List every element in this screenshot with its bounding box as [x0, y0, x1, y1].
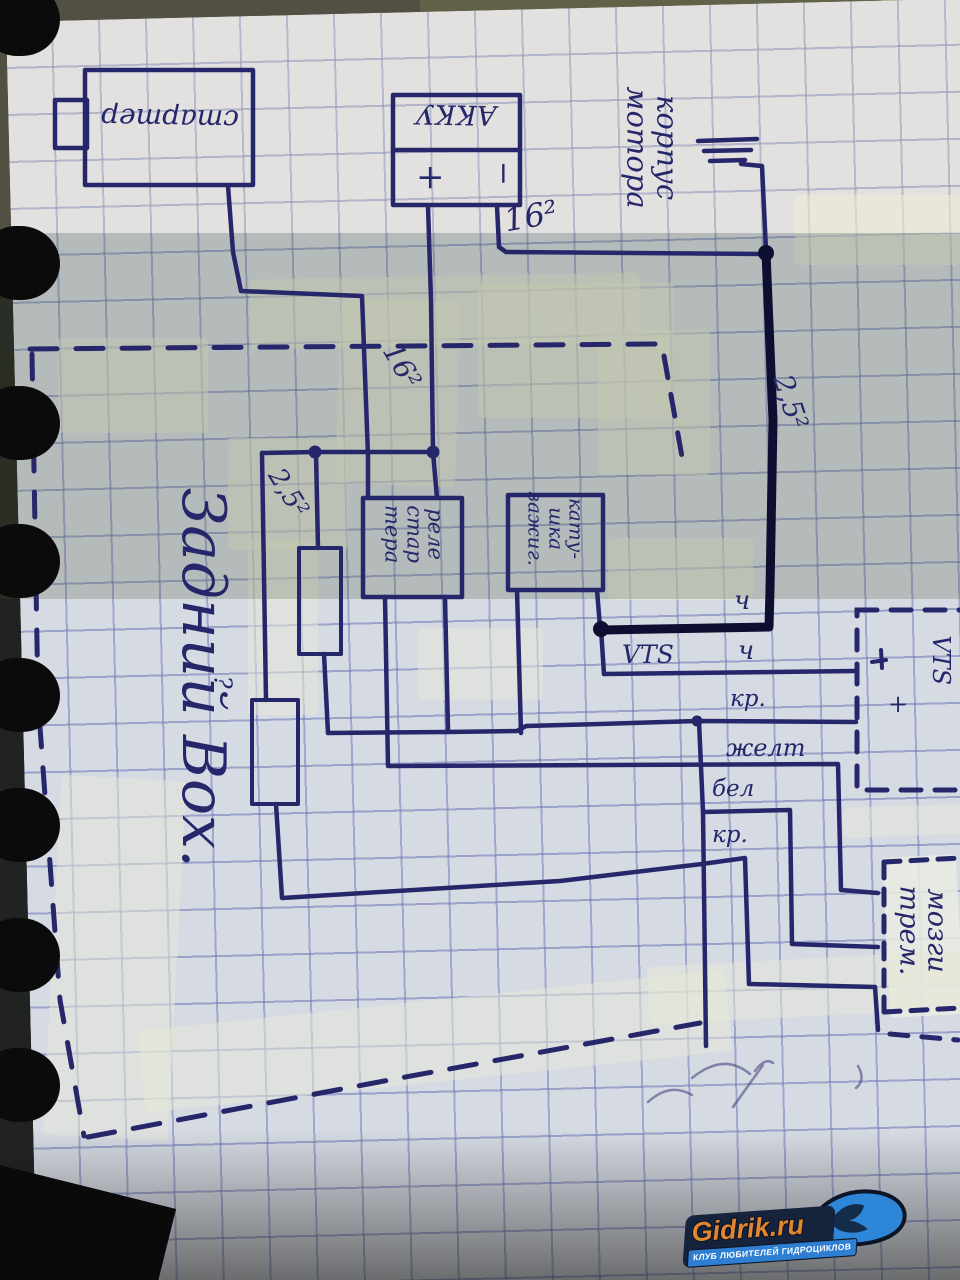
- wire-to-upper-fuse: [316, 452, 318, 548]
- dashed-bottom: [88, 1023, 700, 1137]
- gauge-16-label-a: 16²: [502, 196, 560, 237]
- wire-upper-fuse-out: [324, 654, 328, 733]
- dashed-top: [30, 344, 658, 349]
- ground-symbol: [698, 139, 766, 250]
- red-wire-label-a: кр.: [730, 688, 766, 711]
- scribble: [648, 1090, 692, 1102]
- motor-case-label: корпус мотора: [622, 68, 681, 228]
- scribble: [856, 1066, 862, 1088]
- white-wire-label: бел: [712, 778, 754, 801]
- relay-label: реле стар тера: [381, 487, 445, 582]
- black-wire-label-a: ч: [734, 588, 750, 615]
- wire-red-long-bottom: [276, 804, 878, 1030]
- fuse-upper: [299, 548, 341, 654]
- wire-relay-bottom-stub: [445, 597, 448, 731]
- wire-thick-black: [604, 253, 773, 630]
- wire-drop-to-dashed: [699, 721, 706, 1046]
- battery-label: АККУ: [396, 99, 516, 129]
- dashed-left: [32, 354, 84, 1136]
- yellow-wire-label: желт: [726, 736, 806, 760]
- ecu-label: мозги трем.: [895, 856, 950, 1006]
- battery-minus: −: [487, 161, 518, 186]
- wire-red-to-vts-plus: [328, 721, 856, 733]
- notebook-photo: стартер АККУ + − корпус мотора реле стар…: [0, 0, 960, 1280]
- vts-box-label: VTS: [929, 635, 953, 725]
- coil-label: кату- шка зажиг.: [525, 483, 586, 575]
- vts-minus-tick: [872, 650, 886, 668]
- watermark-logo: Gidrik.ru КЛУБ ЛЮБИТЕЛЕЙ ГИДРОЦИКЛОВ: [681, 1186, 914, 1280]
- junction-dot: [758, 245, 774, 261]
- rear-box-question-mark: ?: [210, 676, 234, 689]
- junction-dot: [309, 446, 322, 459]
- vts-wire-label: VTS: [622, 642, 674, 668]
- dashed-bottom-right: [890, 1034, 958, 1040]
- battery-plus: +: [416, 160, 445, 195]
- junction-dot: [593, 621, 609, 637]
- junction-dot: [692, 716, 703, 727]
- red-wire-label-b: кр.: [712, 824, 748, 847]
- scribble: [692, 1064, 750, 1078]
- starter-tab: [55, 100, 87, 148]
- dashed-right-stub: [664, 356, 684, 468]
- black-wire-label-b: ч: [738, 638, 754, 665]
- wire-bus-horizontal: [262, 452, 433, 453]
- wire-to-lower-fuse: [262, 453, 266, 700]
- junction-dot: [427, 446, 440, 459]
- starter-label: стартер: [90, 103, 250, 134]
- fuse-lower: [252, 700, 298, 804]
- vts-box-plus: +: [888, 692, 908, 716]
- wire-coil-left-drop: [517, 590, 521, 733]
